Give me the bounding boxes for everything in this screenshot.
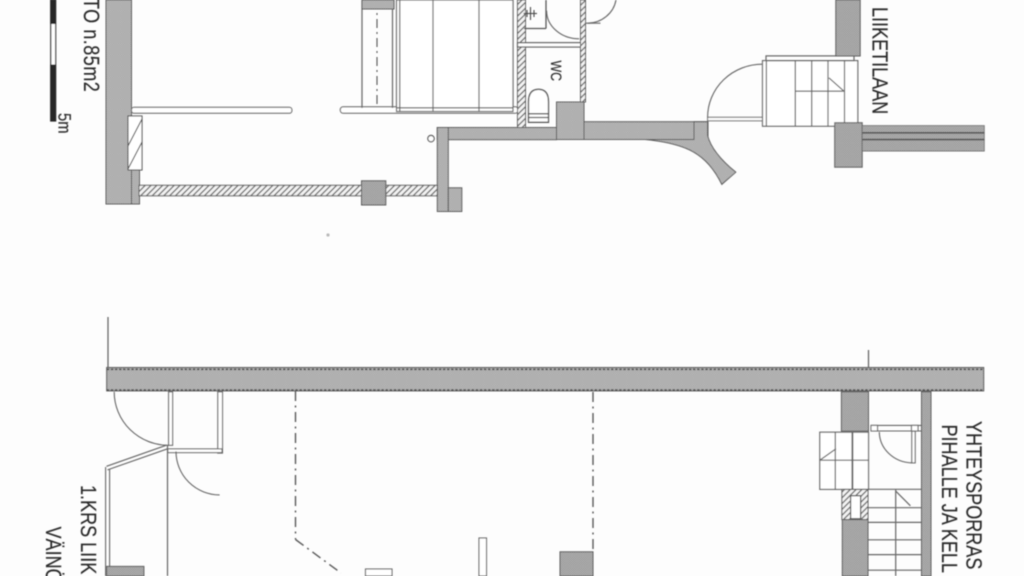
svg-text:5m: 5m (55, 113, 76, 134)
svg-text:YHTEYSPORRAS: YHTEYSPORRAS (962, 421, 987, 569)
svg-text:WC: WC (548, 61, 565, 81)
svg-text:TO n.85m2: TO n.85m2 (79, 0, 104, 92)
svg-text:LIIKETILAAN: LIIKETILAAN (868, 7, 893, 114)
svg-text:1.KRS LIIK: 1.KRS LIIK (76, 485, 101, 574)
svg-text:PIHALLE JA KELL: PIHALLE JA KELL (937, 425, 962, 573)
svg-text:VÄINÖ: VÄINÖ (41, 527, 66, 576)
